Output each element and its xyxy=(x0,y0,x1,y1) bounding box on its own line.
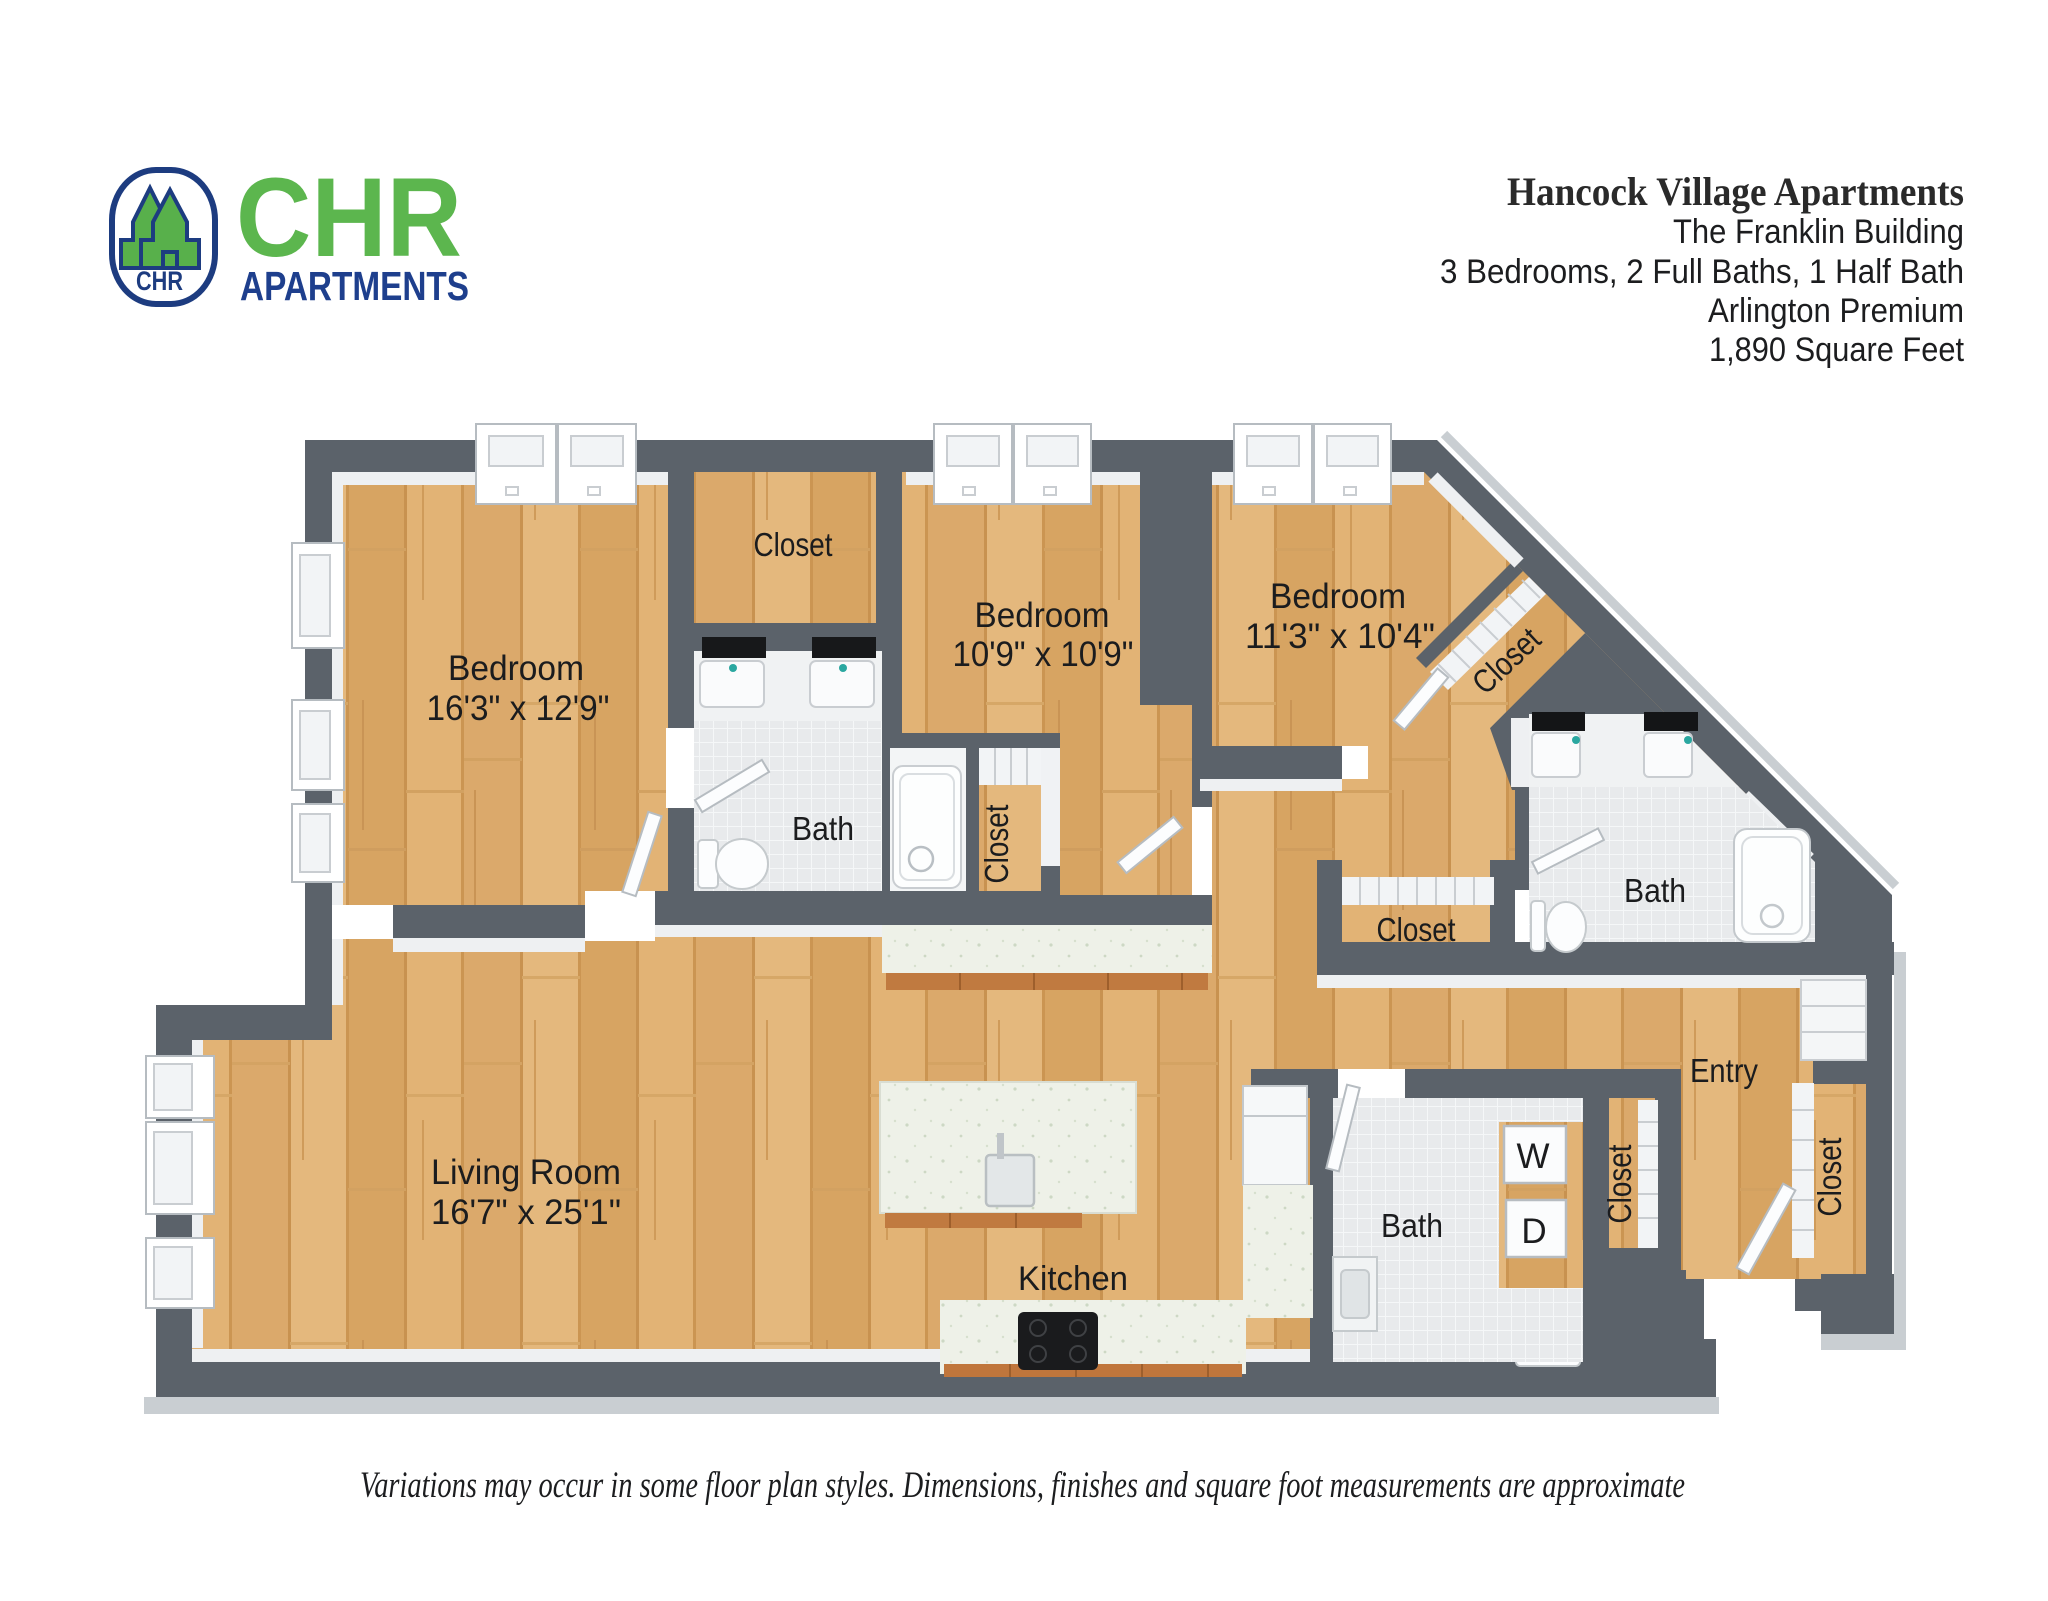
svg-text:The Franklin Building: The Franklin Building xyxy=(1673,213,1964,251)
svg-text:Bedroom: Bedroom xyxy=(975,596,1110,635)
svg-text:Bath: Bath xyxy=(792,810,854,847)
svg-text:Closet: Closet xyxy=(1601,1145,1638,1224)
svg-text:Arlington Premium: Arlington Premium xyxy=(1708,292,1964,330)
svg-text:CHR: CHR xyxy=(236,155,462,280)
svg-text:Bedroom: Bedroom xyxy=(1270,577,1406,616)
svg-text:CHR: CHR xyxy=(136,266,183,296)
svg-text:16'7" x 25'1": 16'7" x 25'1" xyxy=(431,1193,621,1232)
svg-text:APARTMENTS: APARTMENTS xyxy=(240,263,469,309)
svg-text:Closet: Closet xyxy=(754,526,833,563)
svg-text:Closet: Closet xyxy=(1377,911,1456,948)
svg-text:W: W xyxy=(1516,1137,1549,1176)
svg-text:10'9" x 10'9": 10'9" x 10'9" xyxy=(953,635,1134,674)
svg-text:Closet: Closet xyxy=(1811,1138,1848,1217)
svg-text:Variations may occur in some f: Variations may occur in some floor plan … xyxy=(360,1465,1685,1506)
svg-text:Bedroom: Bedroom xyxy=(448,649,584,688)
svg-text:Kitchen: Kitchen xyxy=(1018,1260,1128,1298)
svg-text:Living Room: Living Room xyxy=(431,1153,621,1192)
svg-text:1,890 Square Feet: 1,890 Square Feet xyxy=(1709,331,1964,369)
svg-text:D: D xyxy=(1521,1212,1546,1251)
svg-text:Hancock Village Apartments: Hancock Village Apartments xyxy=(1507,169,1964,214)
svg-text:11'3" x 10'4": 11'3" x 10'4" xyxy=(1245,617,1435,656)
svg-text:Entry: Entry xyxy=(1690,1052,1758,1089)
svg-text:3 Bedrooms, 2 Full Baths, 1 Ha: 3 Bedrooms, 2 Full Baths, 1 Half Bath xyxy=(1440,253,1964,291)
svg-text:Closet: Closet xyxy=(978,805,1015,884)
svg-text:Bath: Bath xyxy=(1624,872,1686,909)
svg-text:Bath: Bath xyxy=(1381,1207,1443,1244)
svg-text:16'3" x 12'9": 16'3" x 12'9" xyxy=(427,689,610,728)
